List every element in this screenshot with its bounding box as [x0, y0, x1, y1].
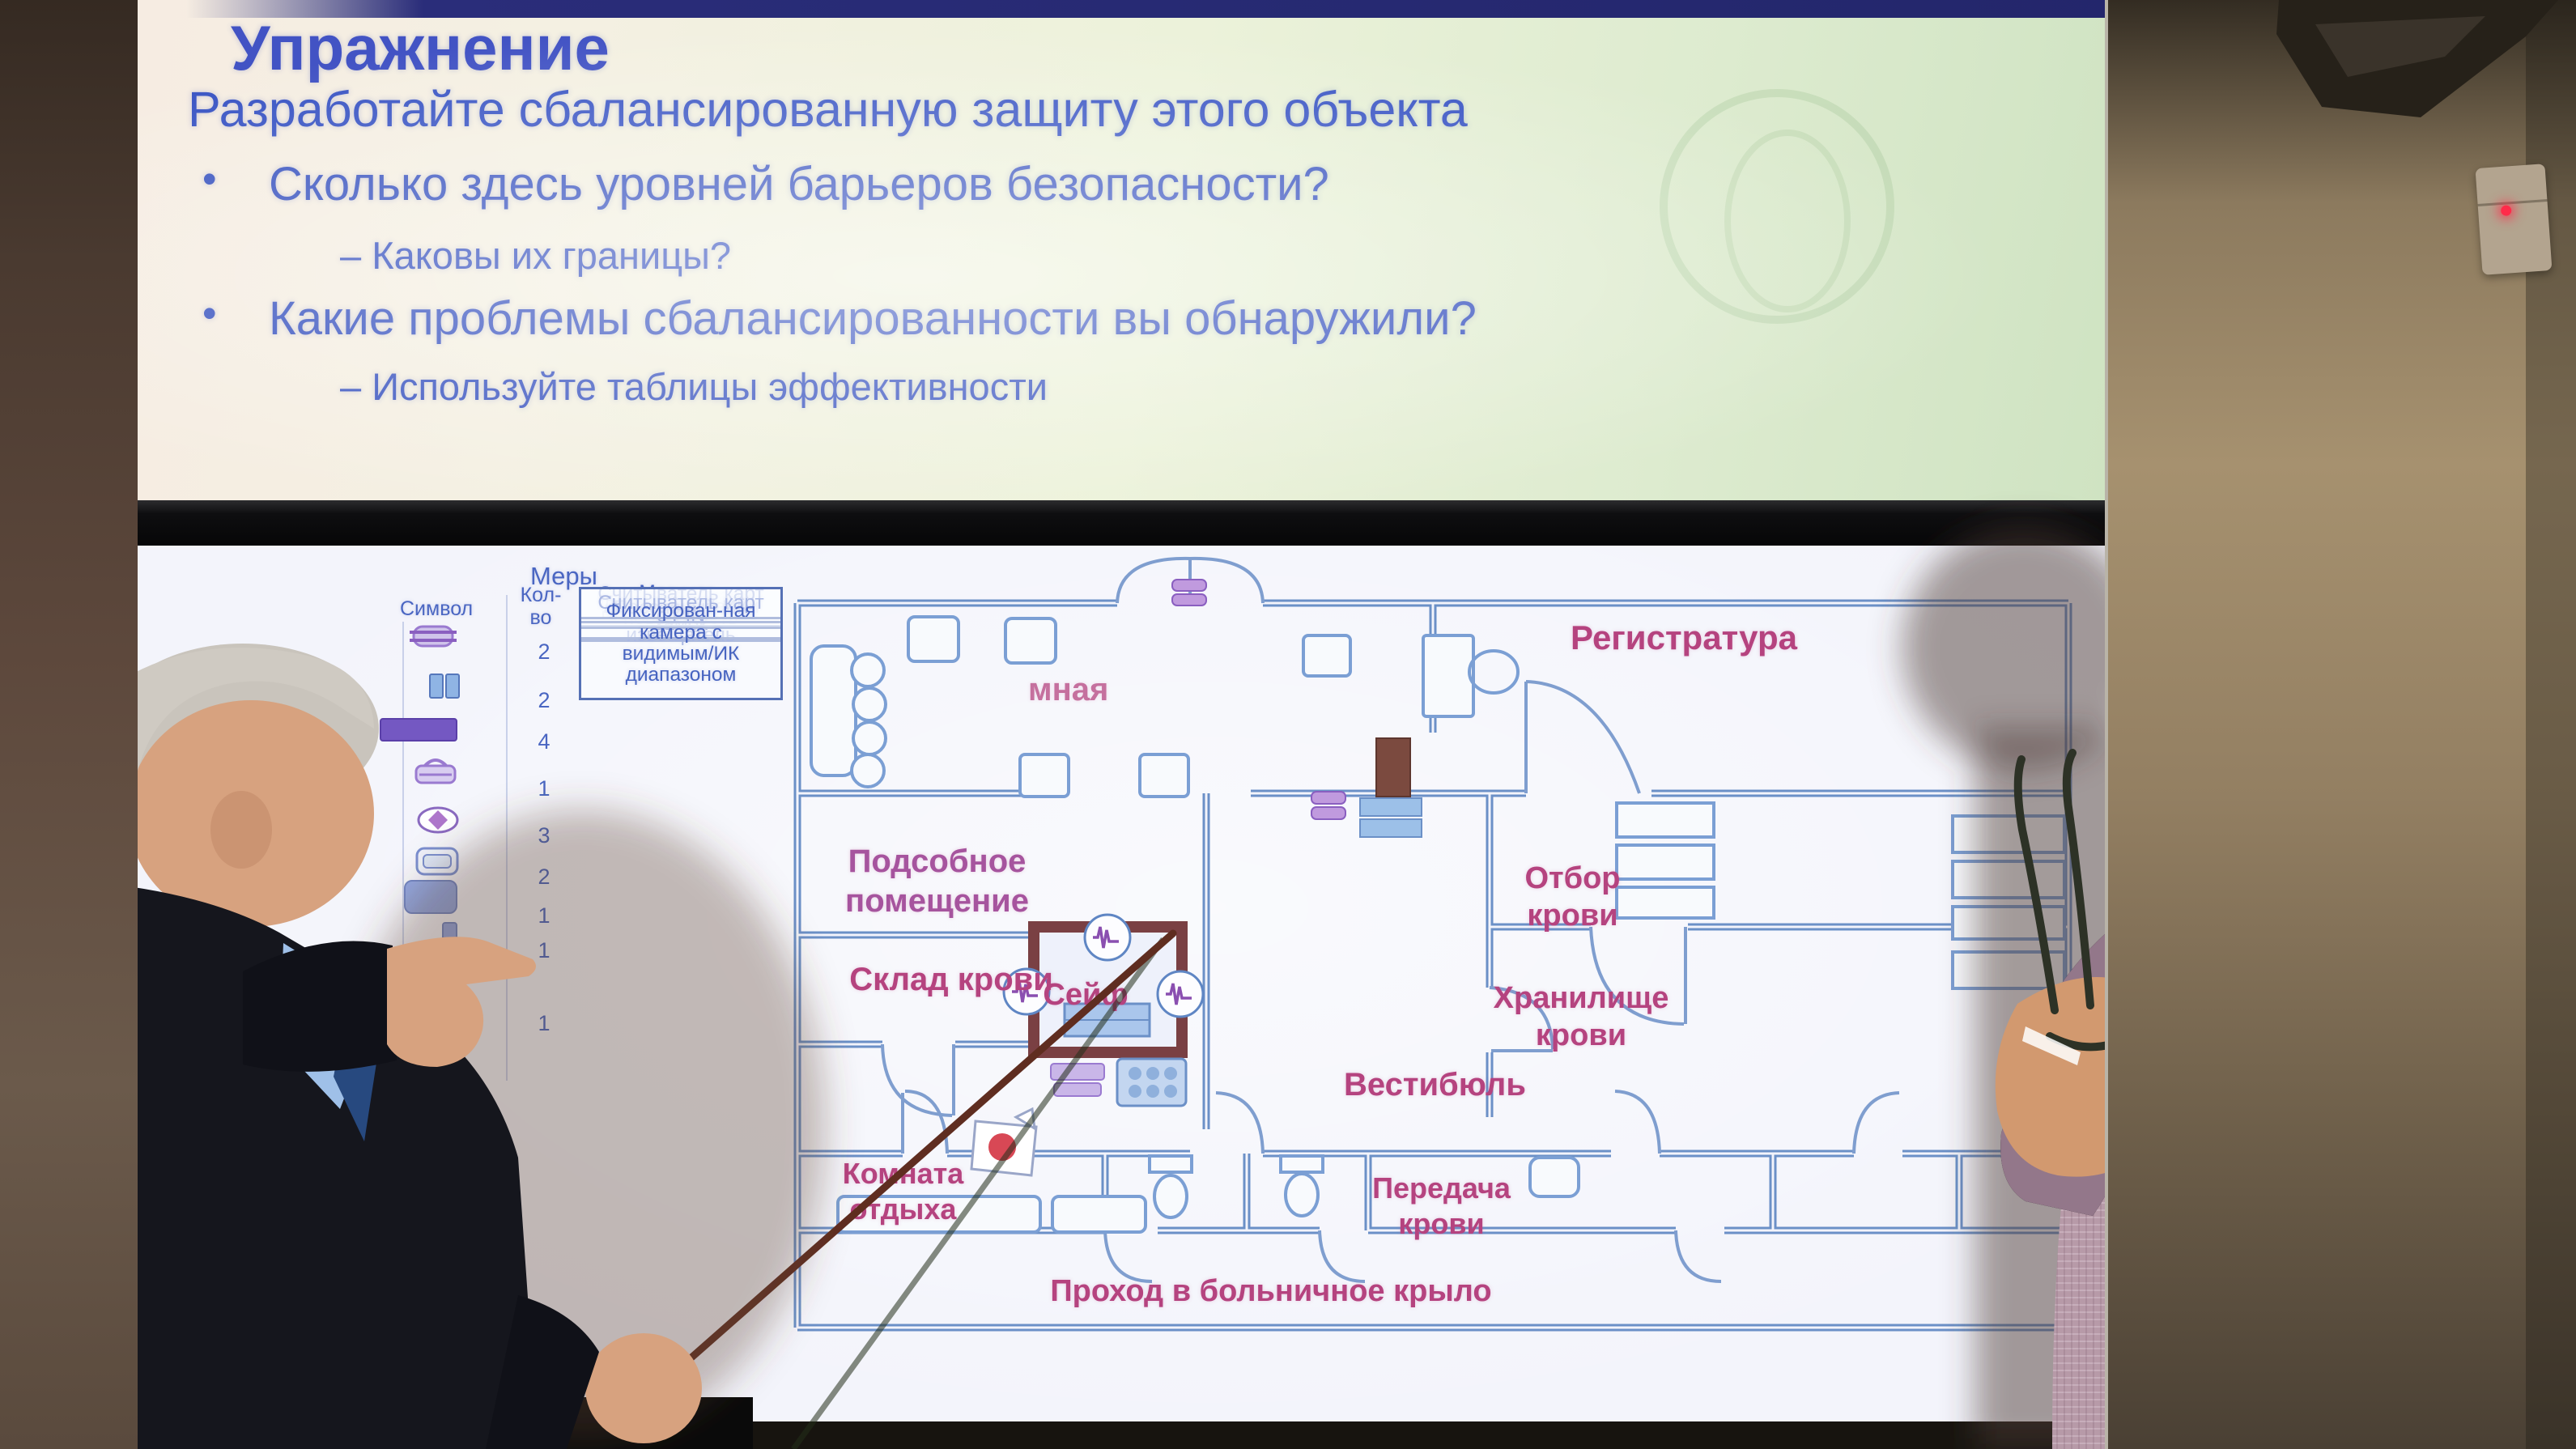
pointer-stick-shadow	[793, 939, 1163, 1449]
right-arm-sleeve	[243, 941, 397, 1071]
red-led-indicator-icon	[2501, 205, 2512, 216]
wall-sensor	[2476, 164, 2553, 275]
ear	[210, 791, 272, 869]
photo-of-presentation-scene: Упражнение Разработайте сбалансированную…	[0, 0, 2576, 1449]
left-wall	[0, 0, 138, 1449]
ceiling-bracket	[2105, 0, 2576, 178]
left-hand-fist	[585, 1333, 702, 1443]
